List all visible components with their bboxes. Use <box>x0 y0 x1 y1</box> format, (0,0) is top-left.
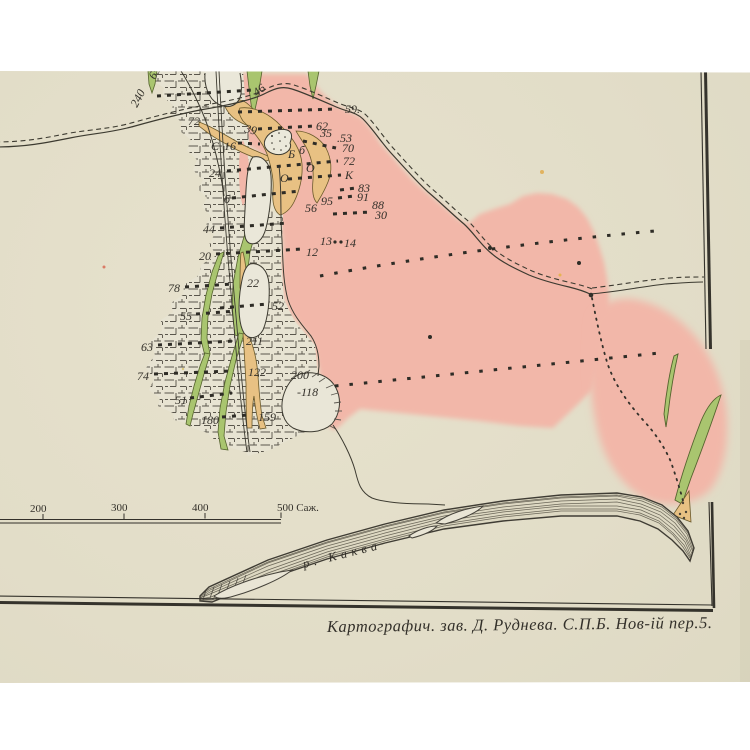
svg-text:63: 63 <box>141 340 153 354</box>
svg-text:74: 74 <box>137 369 149 383</box>
svg-text:20: 20 <box>199 249 211 263</box>
svg-text:72: 72 <box>343 154 355 168</box>
svg-text:Б: Б <box>287 147 295 161</box>
svg-text:159: 159 <box>258 410 276 424</box>
svg-text:16: 16 <box>224 139 236 153</box>
svg-text:52: 52 <box>272 299 284 313</box>
svg-text:14: 14 <box>344 236 356 250</box>
svg-text:500 Саж.: 500 Саж. <box>277 502 319 514</box>
svg-text:200: 200 <box>30 503 47 515</box>
svg-text:-118: -118 <box>297 385 318 399</box>
svg-text:К: К <box>344 168 354 182</box>
svg-text:59.: 59. <box>345 102 360 116</box>
svg-text:95: 95 <box>321 194 333 208</box>
svg-text:56: 56 <box>305 201 317 215</box>
svg-text:12: 12 <box>306 245 318 259</box>
svg-text:О: О <box>280 171 289 185</box>
svg-text:35: 35 <box>319 126 332 140</box>
svg-text:211: 211 <box>246 334 263 348</box>
svg-text:180: 180 <box>201 413 219 427</box>
svg-text:400: 400 <box>192 502 209 514</box>
svg-text:13: 13 <box>320 234 332 248</box>
svg-text:30: 30 <box>374 208 387 222</box>
svg-text:91: 91 <box>357 190 369 204</box>
svg-text:C: C <box>211 139 220 153</box>
svg-text:44: 44 <box>203 222 215 236</box>
svg-text:22: 22 <box>247 276 259 290</box>
svg-text:72: 72 <box>188 114 200 128</box>
svg-text:122: 122 <box>248 365 266 379</box>
svg-text:Картографич. зав. Д. Руднев: Картографич. зав. Д. Руднева. С.П.Б. Нов… <box>326 613 712 636</box>
svg-text:О: О <box>306 161 315 175</box>
svg-text:70: 70 <box>342 141 354 155</box>
svg-text:б: б <box>224 192 231 206</box>
svg-text:78: 78 <box>168 281 180 295</box>
svg-text:б: б <box>299 143 306 157</box>
svg-text:200: 200 <box>291 368 309 382</box>
svg-text:24: 24 <box>209 166 221 180</box>
svg-text:55: 55 <box>180 309 192 323</box>
svg-text:300: 300 <box>111 502 128 514</box>
svg-text:51: 51 <box>175 393 187 407</box>
